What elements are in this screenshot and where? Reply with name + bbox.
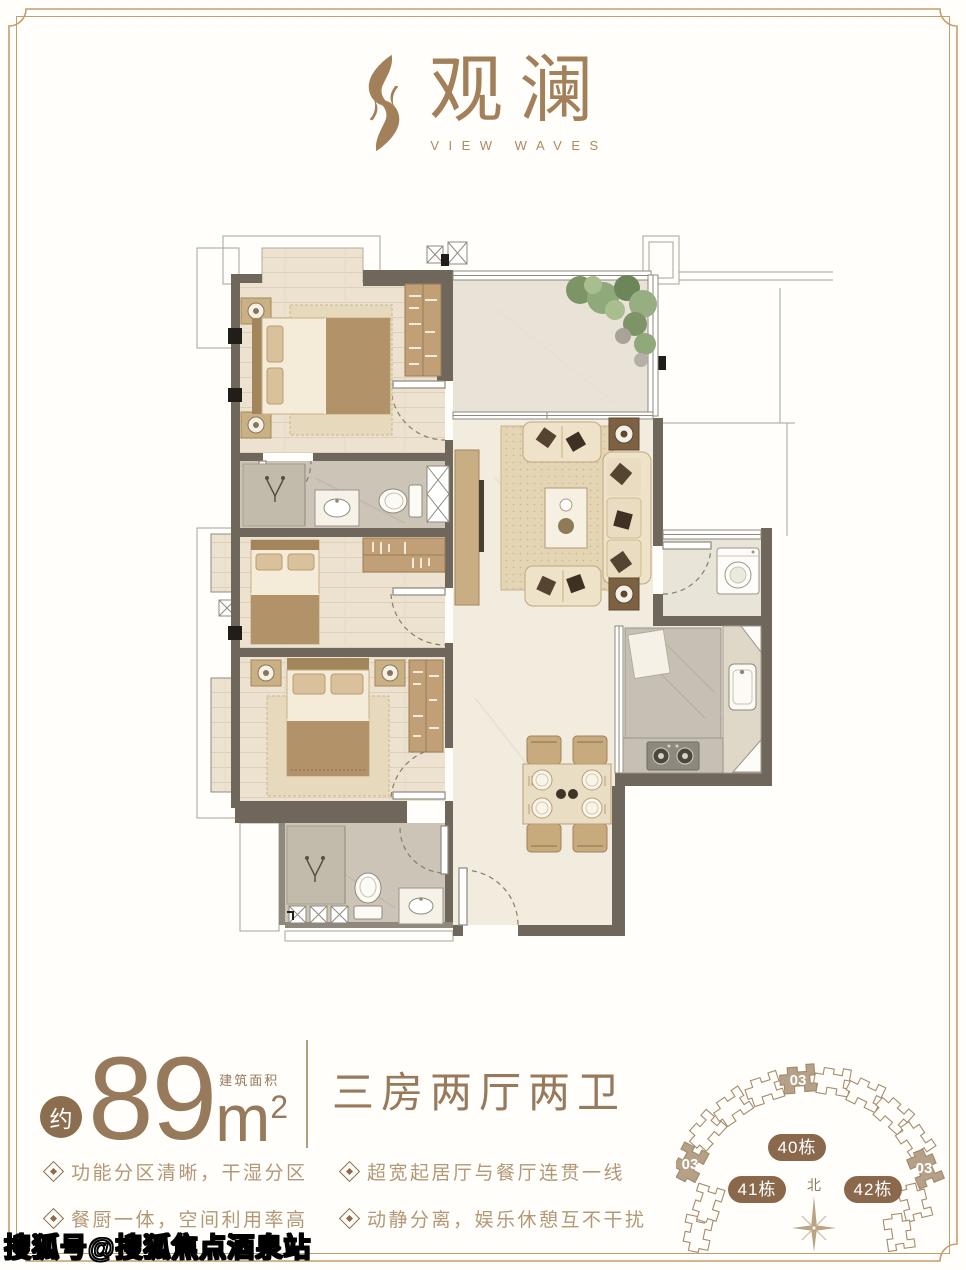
kitchen: [623, 626, 761, 773]
wardrobe: [405, 284, 441, 376]
area-unit-block: 建筑面积 m 2: [215, 1070, 288, 1148]
feature-item: 超宽起居厅与餐厅连贯一线: [342, 1158, 672, 1185]
single-bed: [251, 540, 319, 644]
watermark: 搜狐号@搜狐焦点酒泉站: [4, 1226, 311, 1265]
site-map: 03 03 03 40栋 41栋 42栋 北: [676, 1056, 958, 1264]
bay-window: [262, 248, 363, 288]
unit-label: 03: [682, 1156, 699, 1173]
area-unit-exponent: 2: [270, 1091, 288, 1123]
washing-machine-icon: [717, 548, 759, 594]
unit-label: 03: [916, 1160, 933, 1177]
toilet-icon: [354, 873, 382, 919]
double-bed: [287, 658, 369, 776]
sink-vanity: [315, 490, 359, 526]
area-value: 89: [88, 1048, 215, 1152]
sofa-main: [603, 452, 651, 584]
logo-text: 观澜 VIEW WAVES: [429, 54, 609, 153]
logo-name-en: VIEW WAVES: [429, 138, 609, 153]
diamond-bullet-icon: [43, 1161, 64, 1182]
feature-text: 功能分区清晰，干湿分区: [71, 1158, 308, 1185]
tv-icon: [479, 480, 484, 552]
laundry-boxes: [287, 906, 348, 923]
badge-41: 41栋: [738, 1180, 777, 1199]
logo-name-cn: 观澜: [429, 54, 609, 128]
utility-room: [717, 548, 759, 594]
double-bed: [252, 318, 390, 414]
area-unit-base: m: [215, 1089, 270, 1148]
wardrobe: [409, 660, 443, 752]
shower-area: [287, 826, 345, 904]
wardrobe: [363, 538, 445, 572]
badge-40: 40栋: [778, 1138, 817, 1157]
logo-swirl-icon: [357, 52, 411, 154]
badge-42: 42栋: [854, 1180, 893, 1199]
divider: [306, 1040, 308, 1148]
layout-name: 三房两厅两卫: [332, 1059, 626, 1120]
coffee-table: [545, 488, 587, 548]
north-label: 北: [807, 1177, 821, 1193]
diamond-bullet-icon: [339, 1208, 360, 1229]
sink-vanity: [399, 888, 443, 924]
stove-icon: [647, 742, 699, 770]
kitchen-sink: [729, 664, 756, 710]
feature-list: 功能分区清晰，干湿分区 超宽起居厅与餐厅连贯一线 餐厨一体，空间利用率高 动静分…: [46, 1158, 672, 1232]
area-summary: 约 89 建筑面积 m 2 三房两厅两卫: [40, 1036, 626, 1152]
feature-item: 动静分离，娱乐休憩互不干扰: [342, 1205, 672, 1232]
compass: 北: [792, 1177, 836, 1252]
cutting-board: [628, 629, 670, 678]
tv-console: [455, 450, 479, 605]
feature-text: 超宽起居厅与餐厅连贯一线: [367, 1158, 625, 1185]
approx-badge: 约: [40, 1096, 82, 1138]
feature-text: 动静分离，娱乐休憩互不干扰: [367, 1205, 647, 1232]
side-table: [609, 418, 639, 450]
poster-page: 观澜 VIEW WAVES: [0, 0, 966, 1270]
loveseat: [523, 422, 601, 462]
logo: 观澜 VIEW WAVES: [0, 52, 966, 154]
area-unit: m 2: [215, 1089, 288, 1148]
floor-plan: [195, 228, 835, 946]
unit-label: 03: [790, 1072, 807, 1089]
side-table: [609, 578, 639, 610]
loveseat: [525, 566, 601, 606]
dining-table: [523, 764, 611, 824]
diamond-bullet-icon: [339, 1161, 360, 1182]
feature-item: 功能分区清晰，干湿分区: [46, 1158, 342, 1185]
